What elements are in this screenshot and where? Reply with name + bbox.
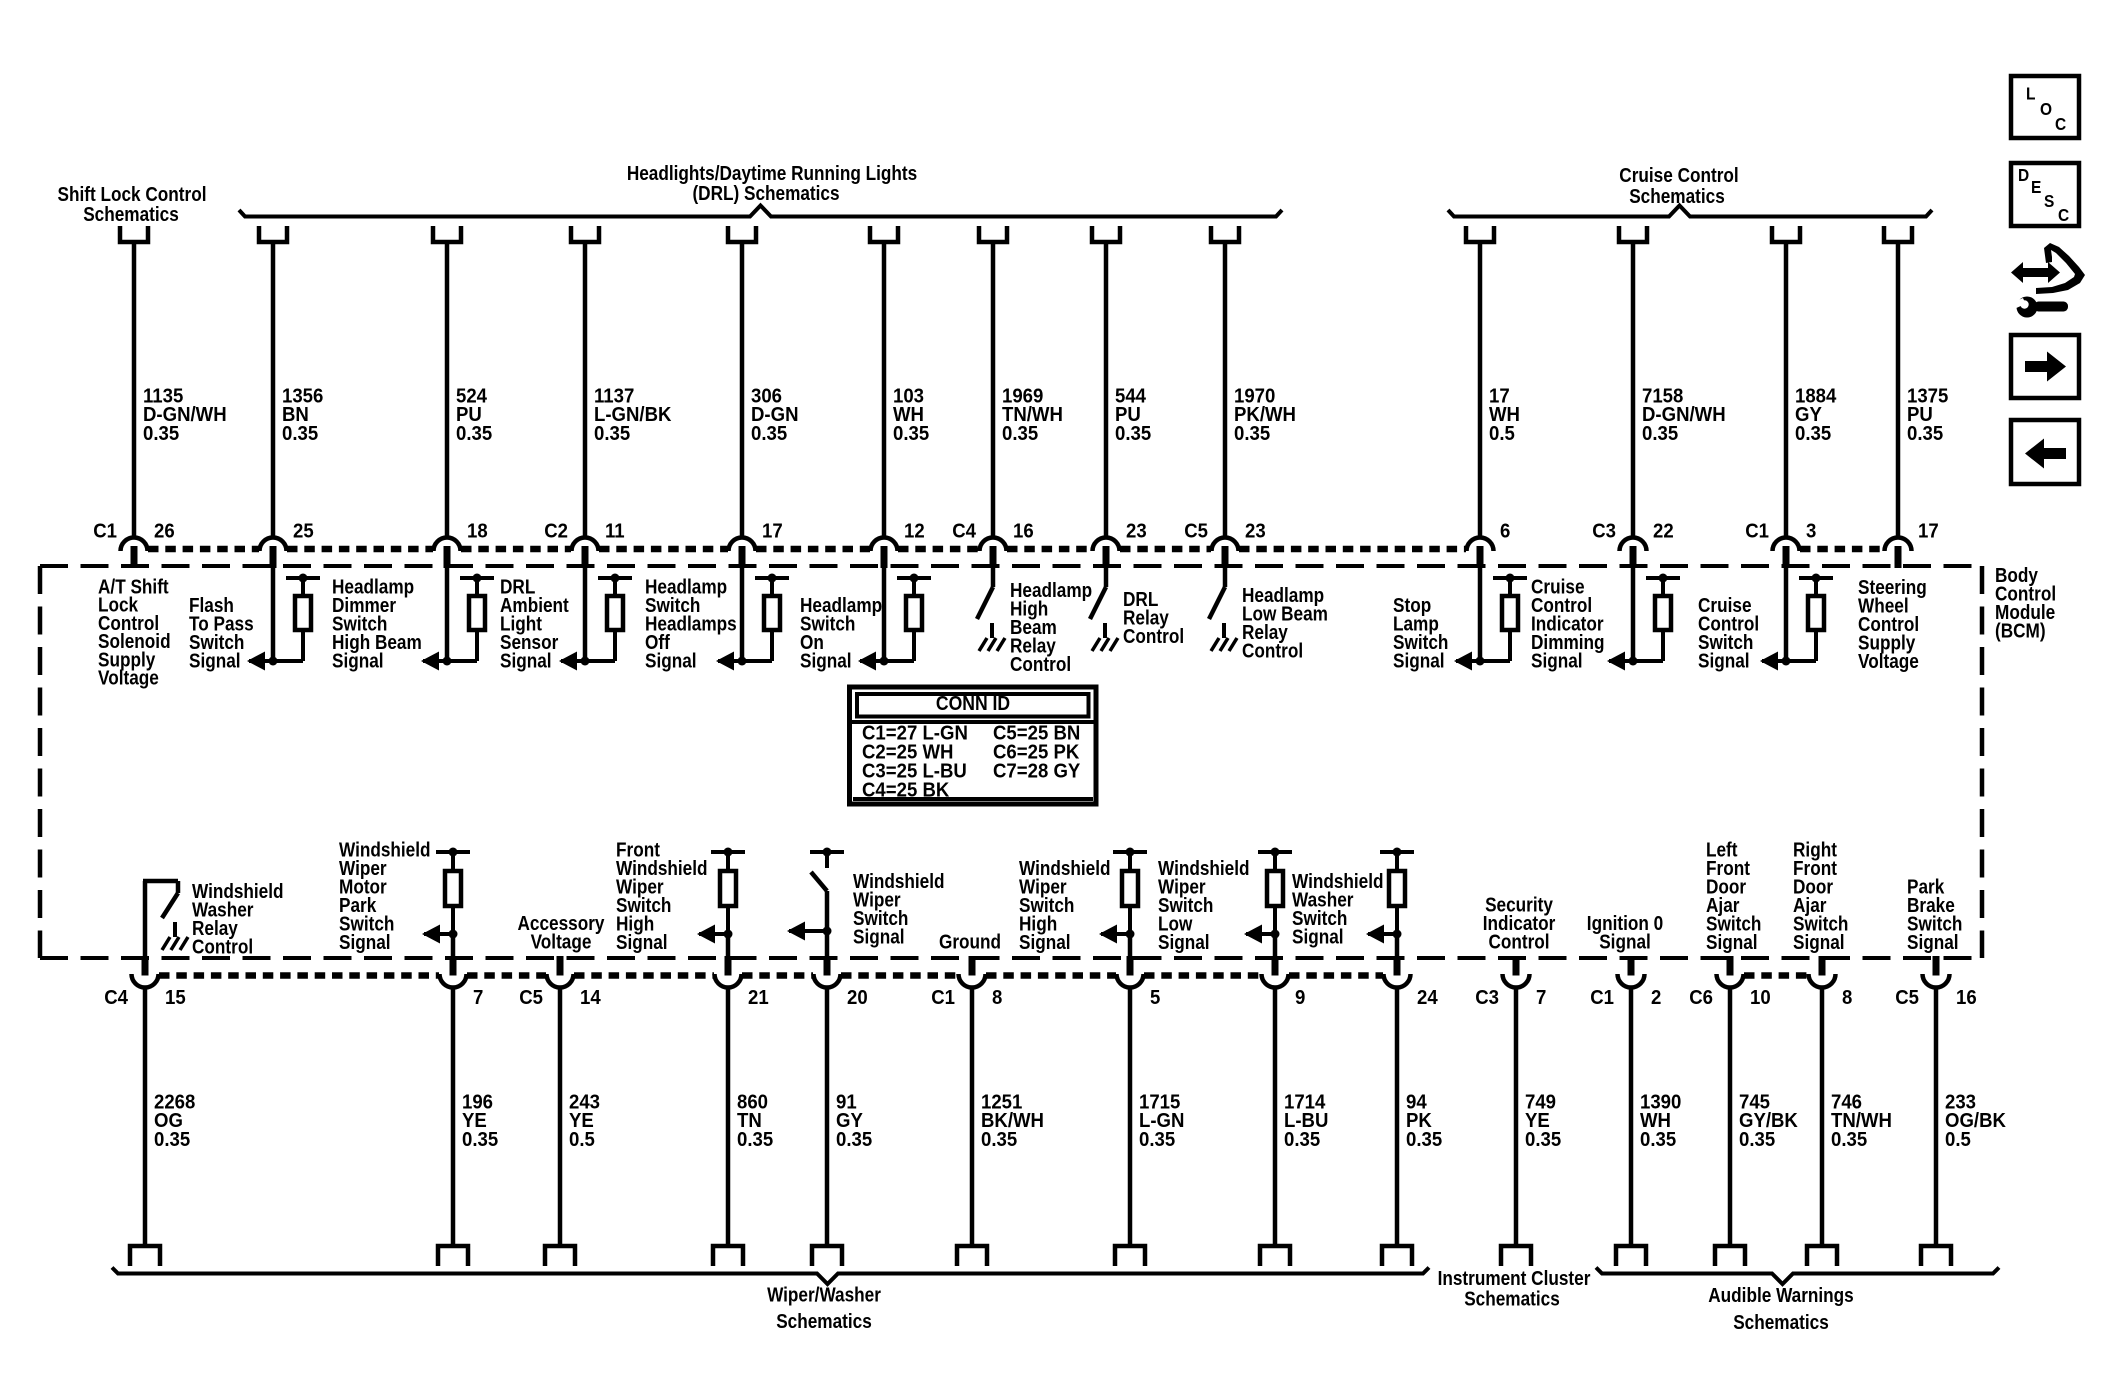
svg-text:(DRL) Schematics: (DRL) Schematics <box>692 182 839 205</box>
svg-text:C7=28 GY: C7=28 GY <box>993 761 1080 783</box>
svg-text:Audible Warnings: Audible Warnings <box>1708 1284 1853 1307</box>
svg-text:0.35: 0.35 <box>981 1129 1017 1151</box>
svg-text:7: 7 <box>1536 987 1546 1009</box>
svg-text:Cruise Control: Cruise Control <box>1619 164 1738 187</box>
svg-text:23: 23 <box>1126 521 1147 543</box>
svg-text:24: 24 <box>1417 987 1438 1009</box>
svg-text:0.35: 0.35 <box>1406 1129 1442 1151</box>
svg-text:23: 23 <box>1245 521 1266 543</box>
svg-text:C1: C1 <box>931 987 955 1009</box>
svg-text:Schematics: Schematics <box>776 1310 872 1333</box>
svg-text:Signal: Signal <box>853 925 905 948</box>
svg-text:Signal: Signal <box>189 649 241 672</box>
svg-text:12: 12 <box>904 521 925 543</box>
svg-text:C1: C1 <box>93 521 117 543</box>
svg-text:C5: C5 <box>519 987 543 1009</box>
svg-text:0.35: 0.35 <box>751 423 787 445</box>
svg-text:Signal: Signal <box>1706 931 1758 954</box>
svg-text:Signal: Signal <box>1158 931 1210 954</box>
svg-text:22: 22 <box>1653 521 1674 543</box>
svg-text:C1: C1 <box>1745 521 1769 543</box>
svg-text:Control: Control <box>1242 639 1303 662</box>
svg-text:Voltage: Voltage <box>1858 650 1919 673</box>
svg-text:C: C <box>2055 114 2066 134</box>
svg-text:2: 2 <box>1651 987 1661 1009</box>
svg-text:L: L <box>2026 83 2035 103</box>
svg-text:0.35: 0.35 <box>1642 423 1678 445</box>
svg-text:Schematics: Schematics <box>83 203 179 226</box>
svg-text:0.35: 0.35 <box>1139 1129 1175 1151</box>
svg-text:Signal: Signal <box>1019 931 1071 954</box>
svg-text:Control: Control <box>1488 930 1549 953</box>
svg-text:Signal: Signal <box>1793 931 1845 954</box>
svg-text:0.35: 0.35 <box>1525 1129 1561 1151</box>
svg-text:C: C <box>2058 205 2069 225</box>
svg-text:26: 26 <box>154 521 175 543</box>
svg-text:0.35: 0.35 <box>893 423 929 445</box>
svg-text:Voltage: Voltage <box>531 930 592 953</box>
svg-text:21: 21 <box>748 987 769 1009</box>
svg-text:14: 14 <box>580 987 601 1009</box>
svg-text:C4: C4 <box>952 521 976 543</box>
svg-text:8: 8 <box>1842 987 1853 1009</box>
svg-text:15: 15 <box>165 987 186 1009</box>
svg-text:C5: C5 <box>1184 521 1208 543</box>
svg-text:0.5: 0.5 <box>1945 1129 1971 1151</box>
svg-text:0.35: 0.35 <box>1284 1129 1320 1151</box>
svg-text:C4=25 BK: C4=25 BK <box>862 780 949 802</box>
svg-text:D: D <box>2018 165 2029 185</box>
svg-text:0.35: 0.35 <box>1115 423 1151 445</box>
svg-text:0.5: 0.5 <box>1489 423 1515 445</box>
svg-text:C4: C4 <box>104 987 128 1009</box>
svg-text:O: O <box>2040 99 2052 119</box>
svg-text:0.35: 0.35 <box>1739 1129 1775 1151</box>
svg-text:9: 9 <box>1295 987 1306 1009</box>
svg-text:C6: C6 <box>1689 987 1713 1009</box>
svg-text:17: 17 <box>1918 521 1939 543</box>
svg-text:0.35: 0.35 <box>154 1129 190 1151</box>
svg-text:0.35: 0.35 <box>1907 423 1943 445</box>
svg-text:5: 5 <box>1150 987 1161 1009</box>
svg-text:Signal: Signal <box>332 649 384 672</box>
svg-text:16: 16 <box>1956 987 1977 1009</box>
svg-text:E: E <box>2031 177 2041 197</box>
svg-text:Voltage: Voltage <box>98 666 159 689</box>
svg-text:25: 25 <box>293 521 314 543</box>
svg-text:C2: C2 <box>544 521 568 543</box>
svg-text:Signal: Signal <box>1393 649 1445 672</box>
svg-text:0.35: 0.35 <box>836 1129 872 1151</box>
svg-text:0.35: 0.35 <box>143 423 179 445</box>
svg-text:11: 11 <box>605 521 625 543</box>
svg-text:Schematics: Schematics <box>1464 1287 1560 1310</box>
svg-text:C3: C3 <box>1475 987 1499 1009</box>
svg-text:Signal: Signal <box>1292 925 1344 948</box>
svg-text:0.35: 0.35 <box>1831 1129 1867 1151</box>
svg-text:S: S <box>2044 191 2054 211</box>
svg-text:0.35: 0.35 <box>1640 1129 1676 1151</box>
svg-text:3: 3 <box>1806 521 1817 543</box>
svg-text:0.35: 0.35 <box>282 423 318 445</box>
svg-text:8: 8 <box>992 987 1003 1009</box>
svg-text:0.35: 0.35 <box>462 1129 498 1151</box>
svg-text:Signal: Signal <box>339 931 391 954</box>
svg-text:Schematics: Schematics <box>1629 185 1725 208</box>
svg-text:Ground: Ground <box>939 930 1001 953</box>
svg-text:Control: Control <box>1010 653 1071 676</box>
svg-text:Wiper/Washer: Wiper/Washer <box>767 1283 881 1306</box>
svg-text:Signal: Signal <box>616 931 668 954</box>
svg-text:Signal: Signal <box>645 649 697 672</box>
svg-text:0.5: 0.5 <box>569 1129 595 1151</box>
svg-text:Signal: Signal <box>1698 649 1750 672</box>
svg-text:C5: C5 <box>1895 987 1919 1009</box>
svg-text:Signal: Signal <box>800 649 852 672</box>
svg-text:0.35: 0.35 <box>456 423 492 445</box>
svg-text:7: 7 <box>473 987 483 1009</box>
svg-text:17: 17 <box>762 521 783 543</box>
svg-text:Signal: Signal <box>1907 931 1959 954</box>
svg-text:16: 16 <box>1013 521 1034 543</box>
svg-text:Signal: Signal <box>500 649 552 672</box>
svg-text:18: 18 <box>467 521 488 543</box>
svg-text:Signal: Signal <box>1599 930 1651 953</box>
svg-text:CONN ID: CONN ID <box>936 692 1010 714</box>
svg-text:6: 6 <box>1500 521 1511 543</box>
svg-text:0.35: 0.35 <box>1795 423 1831 445</box>
svg-text:Control: Control <box>192 935 253 958</box>
svg-text:20: 20 <box>847 987 868 1009</box>
svg-text:0.35: 0.35 <box>1234 423 1270 445</box>
svg-text:0.35: 0.35 <box>1002 423 1038 445</box>
svg-text:Instrument Cluster: Instrument Cluster <box>1438 1267 1591 1290</box>
svg-text:(BCM): (BCM) <box>1995 619 2046 642</box>
svg-text:C3: C3 <box>1592 521 1616 543</box>
svg-text:C1: C1 <box>1590 987 1614 1009</box>
svg-text:Signal: Signal <box>1531 649 1583 672</box>
svg-text:0.35: 0.35 <box>737 1129 773 1151</box>
svg-text:Control: Control <box>1123 625 1184 648</box>
svg-text:10: 10 <box>1750 987 1771 1009</box>
svg-text:Schematics: Schematics <box>1733 1311 1829 1334</box>
svg-text:0.35: 0.35 <box>594 423 630 445</box>
